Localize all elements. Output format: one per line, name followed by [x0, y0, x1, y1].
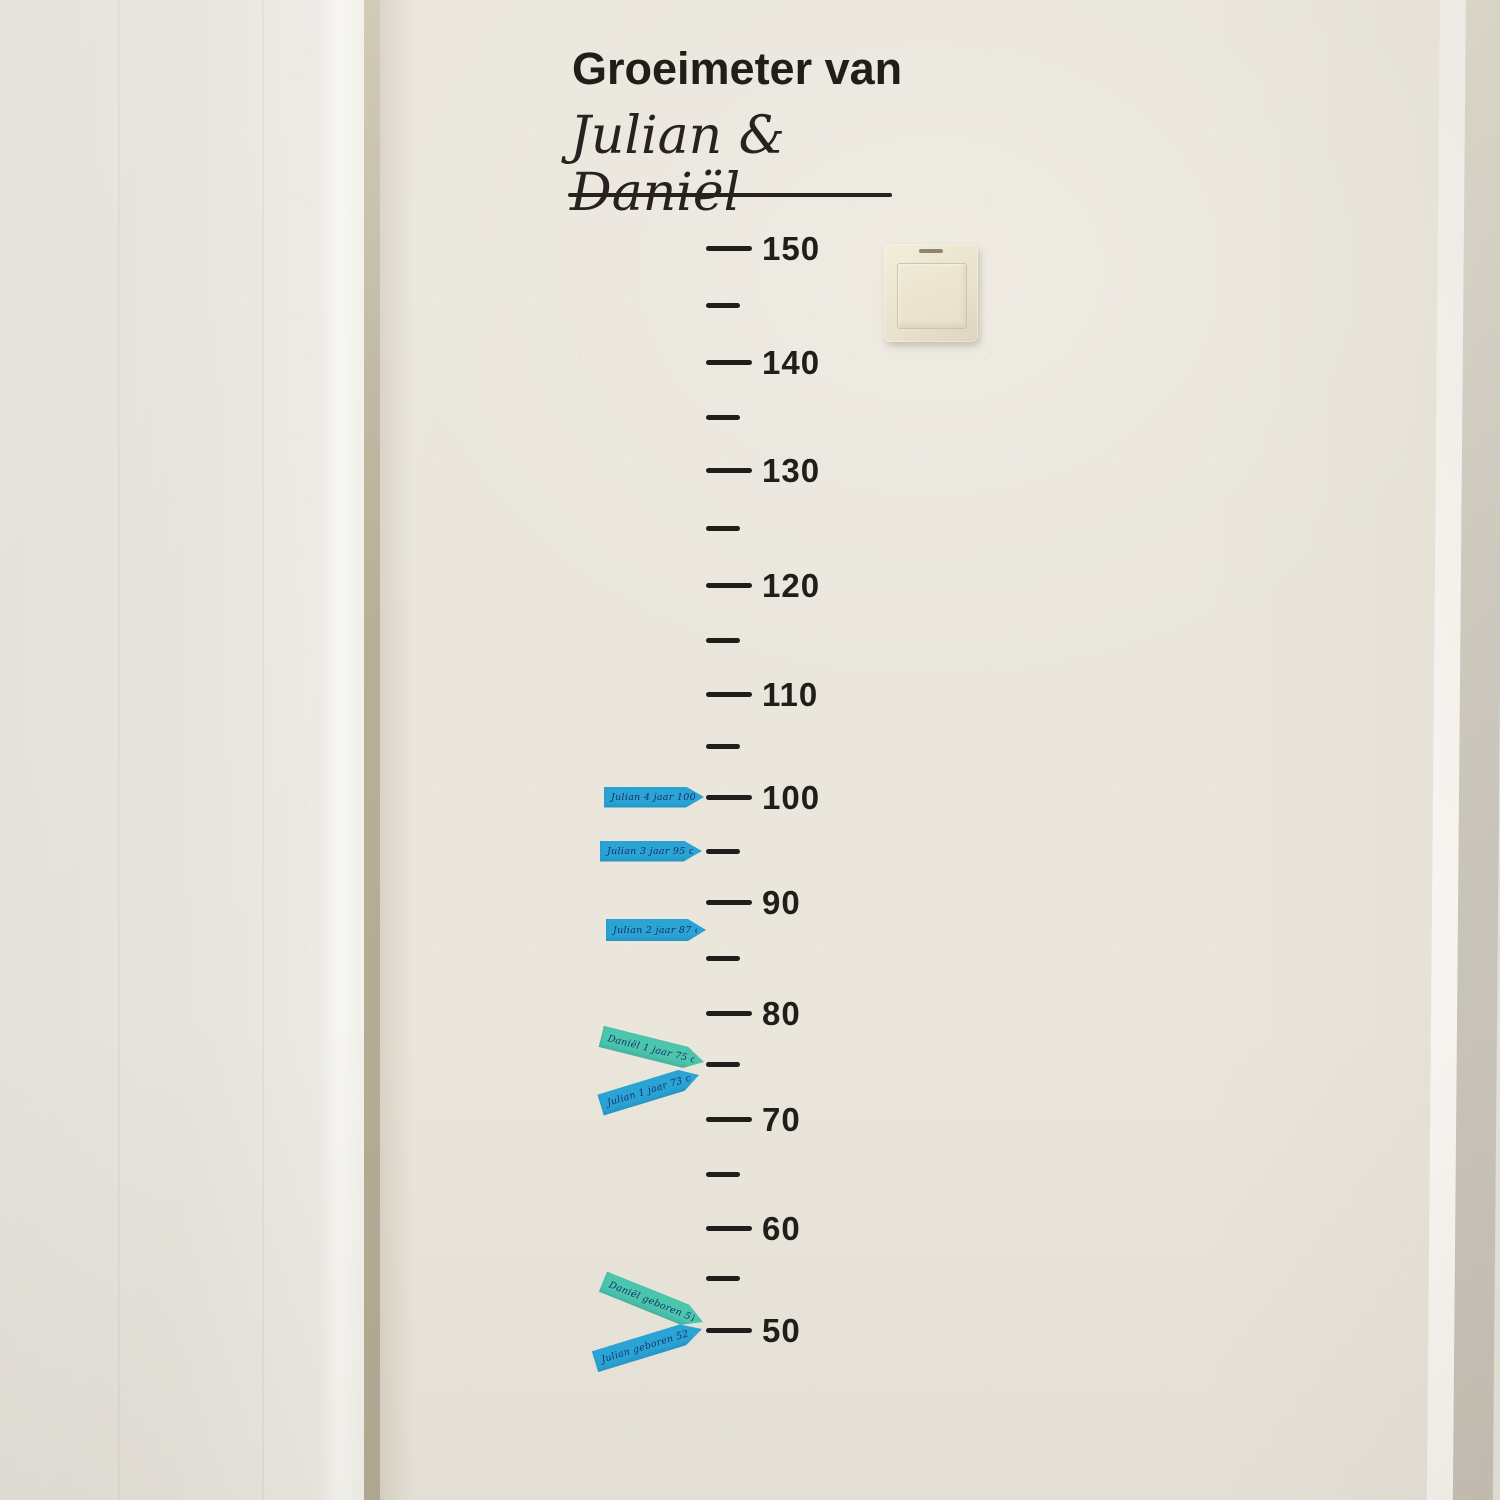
door-frame-panel: [0, 0, 320, 1500]
ruler-tick-label: 100: [762, 781, 820, 814]
marker-handwritten-label: Julian geboren 52 cm: [593, 1327, 693, 1367]
ruler-minor-tick: [706, 303, 740, 308]
ruler-minor-tick: [706, 638, 740, 643]
ruler-tick-label: 130: [762, 454, 820, 487]
growth-chart-title: Groeimeter van: [572, 46, 912, 91]
door-frame-edge-highlight: [318, 0, 364, 1500]
ruler-tick-label: 120: [762, 569, 820, 602]
ruler-major-tick: [706, 583, 752, 588]
ruler-major-tick: [706, 360, 752, 365]
ruler-minor-tick: [706, 849, 740, 854]
ruler-major-tick: [706, 1117, 752, 1122]
door-frame-groove: [364, 0, 380, 1500]
marker-arrow-julian-1-jaar: Julian 1 jaar 73 cm: [597, 1064, 702, 1115]
ruler-major-tick: [706, 246, 752, 251]
ruler-tick-label: 90: [762, 886, 801, 919]
ruler-major-tick: [706, 692, 752, 697]
switch-screw-slot: [919, 249, 943, 253]
marker-arrow-julian-4-jaar: Julian 4 jaar 100 cm: [604, 787, 704, 808]
ruler-major-tick: [706, 1328, 752, 1333]
marker-arrow-julian-3-jaar: Julian 3 jaar 95 cm: [600, 841, 702, 862]
ruler-major-tick: [706, 468, 752, 473]
marker-handwritten-label: Julian 1 jaar 73 cm: [599, 1073, 692, 1111]
ruler-tick-label: 60: [762, 1212, 801, 1245]
ruler-tick-label: 70: [762, 1103, 801, 1136]
marker-handwritten-label: Julian 2 jaar 87 cm: [606, 925, 697, 936]
marker-arrow-julian-geboren: Julian geboren 52 cm: [592, 1318, 706, 1372]
ruler-tick-label: 50: [762, 1314, 801, 1347]
marker-handwritten-label: Julian 3 jaar 95 cm: [600, 846, 693, 857]
ruler-minor-tick: [706, 526, 740, 531]
marker-arrow-daniel-1-jaar: Daniël 1 jaar 75 cm: [598, 1026, 706, 1073]
ruler-major-tick: [706, 900, 752, 905]
marker-handwritten-label: Daniël 1 jaar 75 cm: [600, 1031, 696, 1065]
marker-arrow-julian-2-jaar: Julian 2 jaar 87 cm: [606, 919, 706, 941]
ruler-tick-label: 140: [762, 346, 820, 379]
marker-arrow-daniel-geboren: Daniël geboren 51 cm: [599, 1271, 707, 1332]
door-frame-ridge: [262, 0, 264, 1500]
ruler-minor-tick: [706, 1062, 740, 1067]
marker-handwritten-label: Julian 4 jaar 100 cm: [604, 792, 695, 803]
ruler-minor-tick: [706, 956, 740, 961]
ruler-minor-tick: [706, 1276, 740, 1281]
door-frame-ridge: [118, 0, 120, 1500]
marker-handwritten-label: Daniël geboren 51 cm: [601, 1276, 696, 1323]
ruler-tick-label: 150: [762, 232, 820, 265]
light-switch-rocker[interactable]: [897, 263, 967, 329]
ruler-tick-label: 110: [762, 678, 818, 711]
title-underline: [568, 193, 892, 197]
ruler-minor-tick: [706, 744, 740, 749]
growth-chart-names: Julian & Daniël: [570, 108, 910, 222]
ruler-minor-tick: [706, 1172, 740, 1177]
wall-photo-scene: Groeimeter van Julian & Daniël 150140130…: [0, 0, 1500, 1500]
door-frame-groove-shadow: [380, 0, 414, 1500]
ruler-tick-label: 80: [762, 997, 801, 1030]
ruler-minor-tick: [706, 415, 740, 420]
ruler-major-tick: [706, 1011, 752, 1016]
ruler-major-tick: [706, 1226, 752, 1231]
ruler-major-tick: [706, 795, 752, 800]
light-switch-plate: [884, 244, 978, 342]
